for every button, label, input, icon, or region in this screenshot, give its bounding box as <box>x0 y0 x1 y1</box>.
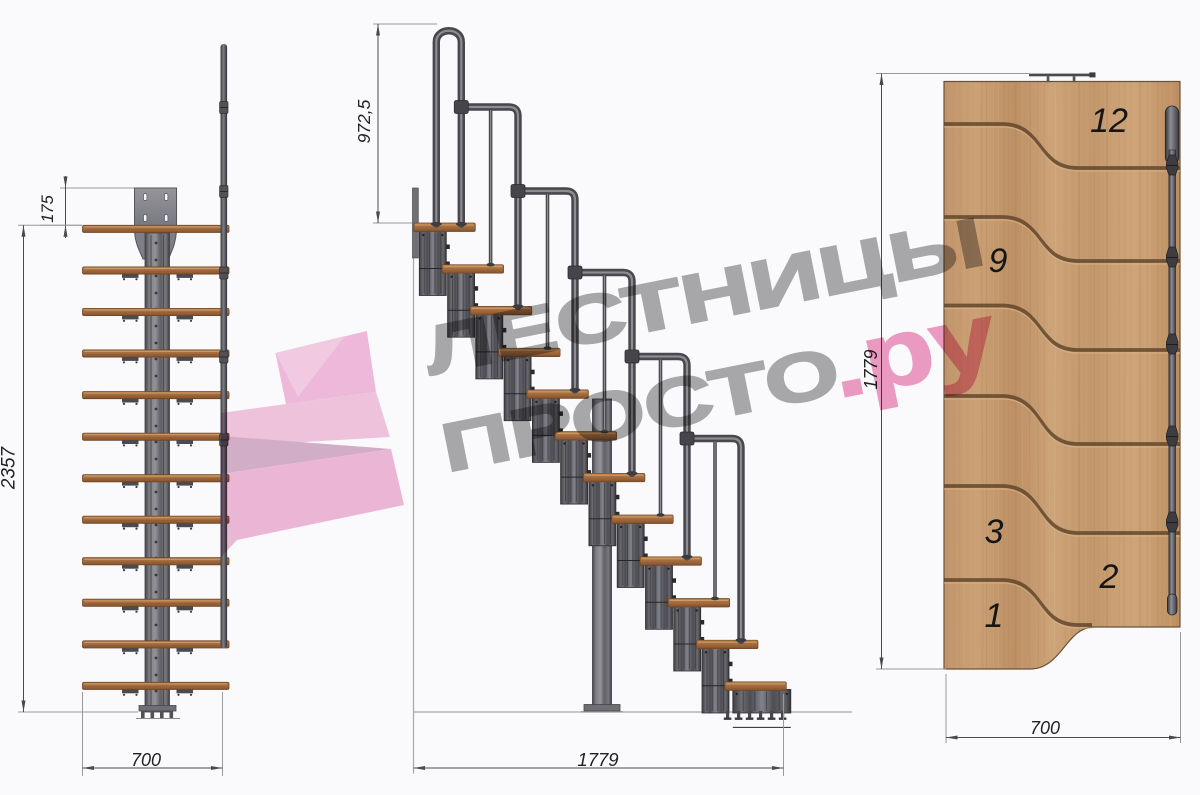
svg-text:175: 175 <box>39 194 57 222</box>
svg-text:700: 700 <box>1030 718 1060 738</box>
svg-text:3: 3 <box>985 513 1004 551</box>
svg-text:1: 1 <box>985 597 1004 635</box>
svg-text:1779: 1779 <box>577 749 618 770</box>
svg-text:9: 9 <box>989 242 1008 280</box>
svg-text:2: 2 <box>1099 558 1119 596</box>
svg-text:700: 700 <box>131 750 161 770</box>
svg-text:12: 12 <box>1090 102 1128 140</box>
svg-text:2357: 2357 <box>0 445 20 490</box>
svg-text:972,5: 972,5 <box>354 99 374 143</box>
